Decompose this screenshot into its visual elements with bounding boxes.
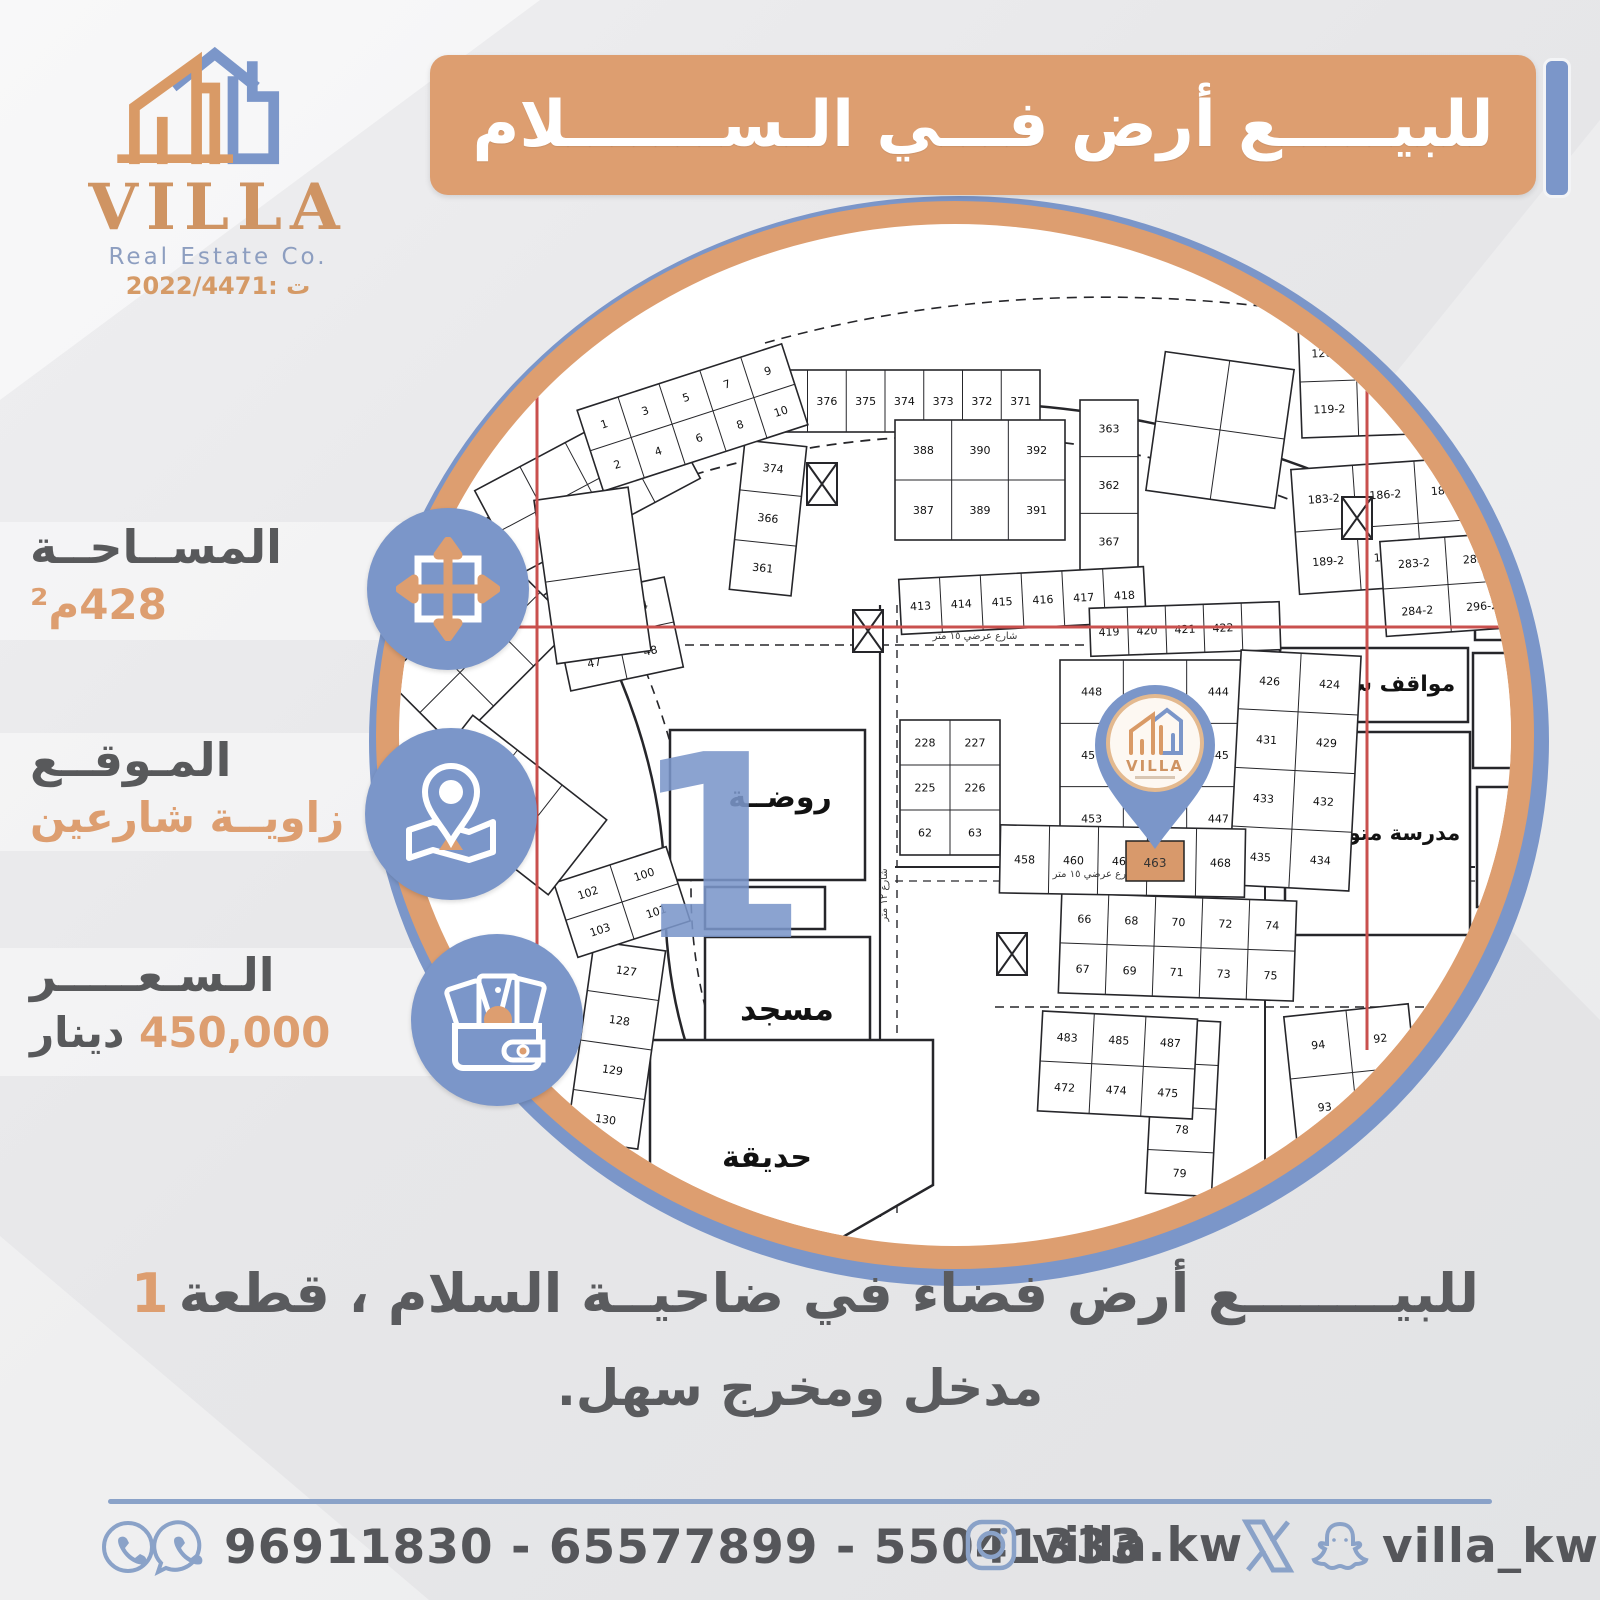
svg-text:474: 474 bbox=[1105, 1083, 1127, 1097]
svg-text:69: 69 bbox=[1122, 964, 1136, 977]
svg-text:283-2: 283-2 bbox=[1398, 556, 1431, 571]
flyer-root: { "brand": { "name": "VILLA", "subtitle"… bbox=[0, 0, 1600, 1600]
svg-text:375: 375 bbox=[855, 395, 876, 408]
svg-text:475: 475 bbox=[1157, 1086, 1179, 1100]
instagram-icon bbox=[962, 1516, 1020, 1574]
price-icon-circle bbox=[411, 934, 583, 1106]
svg-text:418: 418 bbox=[1114, 589, 1136, 603]
instagram-handle: villa.kw bbox=[1032, 1518, 1243, 1573]
parcel-map: روضــةمسجدحديقةمواقف سياراتمدرسة متوسطة3… bbox=[335, 175, 1575, 1315]
svg-text:414: 414 bbox=[951, 597, 973, 611]
svg-text:67: 67 bbox=[1075, 962, 1089, 975]
price-info: الـسـعـــــر 450,000 دينار bbox=[30, 948, 390, 1057]
svg-text:387: 387 bbox=[913, 504, 934, 517]
svg-text:حديقة: حديقة bbox=[722, 1140, 812, 1175]
svg-text:228: 228 bbox=[915, 737, 936, 750]
svg-text:226: 226 bbox=[965, 782, 986, 795]
brand-name: VILLA bbox=[58, 176, 378, 240]
svg-text:372: 372 bbox=[971, 395, 992, 408]
svg-text:361: 361 bbox=[752, 561, 774, 576]
location-label: المـوقــع bbox=[30, 733, 390, 787]
svg-text:366: 366 bbox=[757, 511, 779, 526]
svg-text:421: 421 bbox=[1174, 623, 1195, 637]
svg-text:485: 485 bbox=[1108, 1033, 1130, 1047]
svg-text:72: 72 bbox=[1218, 917, 1232, 930]
svg-text:367: 367 bbox=[1099, 536, 1120, 549]
svg-text:389: 389 bbox=[970, 504, 991, 517]
brand-license: ت :2022/4471 bbox=[58, 272, 378, 300]
svg-text:391: 391 bbox=[1026, 504, 1047, 517]
svg-text:415: 415 bbox=[991, 595, 1013, 609]
svg-text:شارع عرضي ١٥ متر: شارع عرضي ١٥ متر bbox=[932, 631, 1018, 642]
phone-icons bbox=[100, 1516, 212, 1578]
svg-text:487: 487 bbox=[1160, 1036, 1182, 1050]
svg-text:62: 62 bbox=[918, 827, 932, 840]
description-line2: مدخل ومخرج سهل. bbox=[120, 1359, 1480, 1417]
brand-logo: VILLA Real Estate Co. ت :2022/4471 bbox=[58, 28, 378, 300]
svg-text:431: 431 bbox=[1256, 733, 1278, 747]
svg-text:VILLA: VILLA bbox=[1126, 757, 1184, 775]
svg-text:435: 435 bbox=[1250, 850, 1272, 864]
footer-divider bbox=[108, 1499, 1492, 1504]
svg-text:363: 363 bbox=[1099, 422, 1120, 435]
svg-text:429: 429 bbox=[1316, 736, 1338, 750]
svg-text:225: 225 bbox=[915, 782, 936, 795]
plot-number: 1 bbox=[121, 1262, 179, 1325]
svg-text:75: 75 bbox=[1263, 969, 1277, 982]
svg-text:68: 68 bbox=[1124, 914, 1138, 927]
svg-text:119-2: 119-2 bbox=[1313, 402, 1345, 416]
price-value: 450,000 دينار bbox=[30, 1008, 390, 1057]
price-amount: 450,000 bbox=[139, 1008, 330, 1057]
area-value: 428م² bbox=[30, 580, 390, 629]
highlighted-parcel-number: 463 bbox=[1144, 856, 1167, 870]
svg-text:376: 376 bbox=[816, 395, 837, 408]
location-icon-circle bbox=[365, 728, 537, 900]
price-unit: دينار bbox=[30, 1008, 124, 1057]
brand-building-icon bbox=[103, 28, 333, 178]
svg-text:186-2: 186-2 bbox=[1369, 487, 1402, 502]
svg-text:483: 483 bbox=[1056, 1031, 1078, 1045]
description-block: للبيــــــــع أرض فضاء في ضاحيــة السلام… bbox=[120, 1262, 1480, 1417]
svg-text:444: 444 bbox=[1208, 686, 1229, 699]
x-twitter-icon bbox=[1238, 1516, 1298, 1576]
svg-text:183-2: 183-2 bbox=[1307, 492, 1340, 507]
social-handle: villa_kw bbox=[1382, 1519, 1599, 1574]
footer-instagram: villa.kw bbox=[962, 1516, 1243, 1574]
svg-text:424: 424 bbox=[1319, 678, 1341, 692]
svg-text:79: 79 bbox=[1172, 1167, 1187, 1181]
svg-text:392: 392 bbox=[1026, 444, 1047, 457]
svg-text:78: 78 bbox=[1174, 1123, 1189, 1137]
svg-text:70: 70 bbox=[1171, 916, 1185, 929]
svg-text:447: 447 bbox=[1208, 812, 1229, 825]
snapchat-icon bbox=[1310, 1516, 1370, 1576]
map-pin-icon bbox=[395, 758, 507, 870]
svg-text:448: 448 bbox=[1081, 686, 1102, 699]
svg-text:189-2: 189-2 bbox=[1312, 554, 1345, 569]
svg-text:458: 458 bbox=[1014, 853, 1035, 866]
svg-text:468: 468 bbox=[1210, 857, 1231, 870]
svg-text:460: 460 bbox=[1063, 854, 1084, 867]
footer-social: villa_kw bbox=[1238, 1516, 1599, 1576]
svg-text:371: 371 bbox=[1010, 395, 1031, 408]
svg-text:433: 433 bbox=[1253, 792, 1275, 806]
dimensions-move-icon bbox=[396, 537, 500, 641]
wallet-money-icon bbox=[439, 962, 555, 1078]
svg-text:74: 74 bbox=[1265, 919, 1279, 932]
title-banner: للبيـــــع أرض فـــي الـســـــــلام bbox=[430, 55, 1536, 195]
svg-text:94: 94 bbox=[1311, 1038, 1326, 1052]
svg-text:73: 73 bbox=[1216, 967, 1230, 980]
plot-one-overlay: 1 bbox=[631, 701, 808, 998]
description-line1: للبيــــــــع أرض فضاء في ضاحيــة السلام… bbox=[120, 1262, 1480, 1325]
svg-text:434: 434 bbox=[1309, 854, 1331, 868]
price-label: الـسـعـــــر bbox=[30, 948, 390, 1002]
svg-text:374: 374 bbox=[894, 395, 915, 408]
svg-text:426: 426 bbox=[1259, 674, 1281, 688]
svg-text:شارع عرضي ١٥ متر: شارع عرضي ١٥ متر bbox=[1052, 869, 1138, 880]
title-text: للبيـــــع أرض فـــي الـســـــــلام bbox=[472, 88, 1493, 162]
svg-text:66: 66 bbox=[1077, 912, 1091, 925]
area-icon-circle bbox=[367, 508, 529, 670]
location-info: المـوقــع زاويــة شارعين bbox=[30, 733, 390, 842]
svg-text:227: 227 bbox=[965, 737, 986, 750]
svg-text:432: 432 bbox=[1313, 795, 1335, 809]
svg-text:92: 92 bbox=[1373, 1031, 1388, 1045]
brand-subtitle: Real Estate Co. bbox=[58, 244, 378, 270]
svg-text:390: 390 bbox=[970, 444, 991, 457]
svg-text:453: 453 bbox=[1081, 812, 1102, 825]
svg-text:63: 63 bbox=[968, 827, 982, 840]
svg-text:71: 71 bbox=[1169, 966, 1183, 979]
svg-text:373: 373 bbox=[933, 395, 954, 408]
location-value: زاويــة شارعين bbox=[30, 793, 390, 842]
svg-text:417: 417 bbox=[1073, 591, 1095, 605]
title-accent-bar bbox=[1543, 58, 1571, 198]
svg-text:374: 374 bbox=[762, 461, 784, 476]
svg-text:388: 388 bbox=[913, 444, 934, 457]
svg-text:413: 413 bbox=[910, 599, 932, 613]
svg-text:شارع ١٢ متر: شارع ١٢ متر bbox=[879, 868, 890, 922]
area-label: المســاحــة bbox=[30, 520, 390, 574]
svg-text:284-2: 284-2 bbox=[1401, 603, 1434, 618]
svg-text:121-2: 121-2 bbox=[1424, 342, 1456, 356]
area-info: المســاحــة 428م² bbox=[30, 520, 390, 629]
svg-text:362: 362 bbox=[1099, 479, 1120, 492]
svg-text:416: 416 bbox=[1032, 593, 1054, 607]
svg-text:472: 472 bbox=[1054, 1081, 1076, 1095]
